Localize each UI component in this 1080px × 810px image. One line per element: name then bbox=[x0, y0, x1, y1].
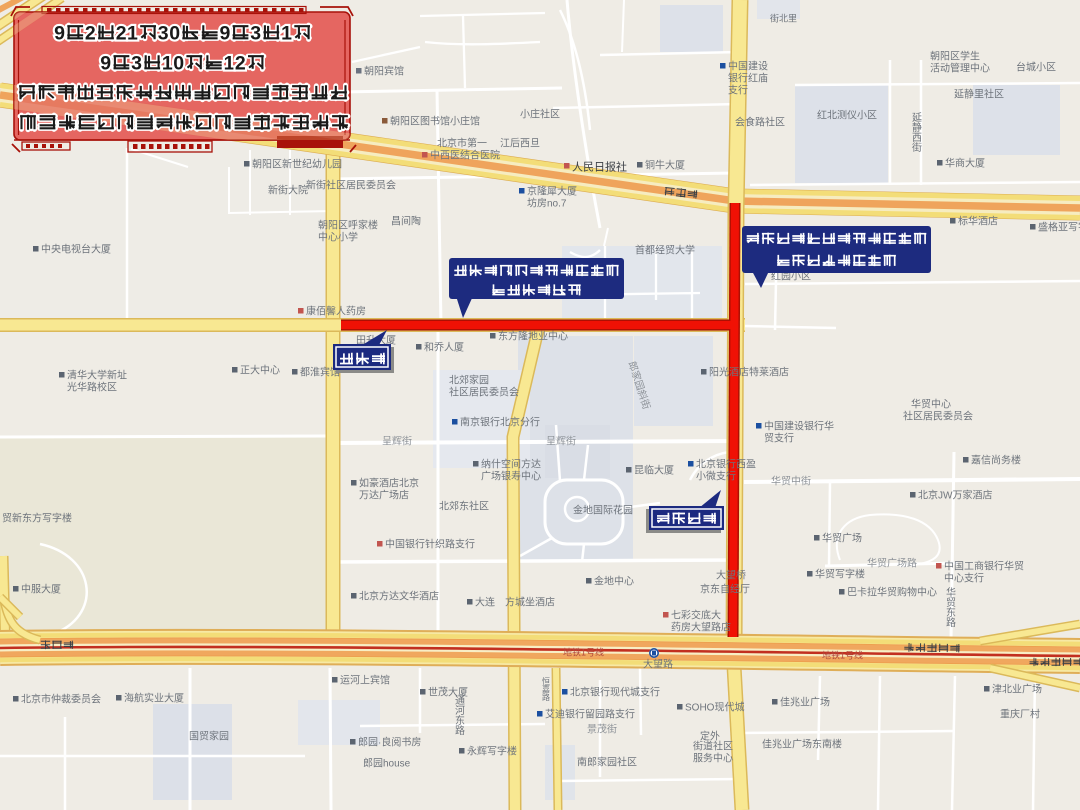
svg-text:1: 1 bbox=[281, 23, 292, 45]
svg-text:通河东路: 通河东路 bbox=[453, 695, 465, 736]
svg-text:永辉写字楼: 永辉写字楼 bbox=[467, 745, 517, 758]
svg-text:佳兆业广场东南楼: 佳兆业广场东南楼 bbox=[762, 738, 842, 751]
svg-text:SOHO现代城: SOHO现代城 bbox=[685, 702, 744, 714]
svg-text:1: 1 bbox=[162, 53, 173, 75]
svg-text:康佰馨人药房: 康佰馨人药房 bbox=[306, 305, 366, 318]
svg-text:如豪酒店北京: 如豪酒店北京 bbox=[359, 477, 419, 490]
svg-text:巴卡拉华贸购物中心: 巴卡拉华贸购物中心 bbox=[847, 586, 937, 599]
svg-text:中西医结合医院: 中西医结合医院 bbox=[430, 149, 500, 162]
svg-text:海航实业大厦: 海航实业大厦 bbox=[124, 692, 184, 705]
svg-text:和乔人厦: 和乔人厦 bbox=[424, 342, 464, 354]
svg-text:小庄社区: 小庄社区 bbox=[520, 108, 560, 121]
svg-text:北京市仲裁委员会: 北京市仲裁委员会 bbox=[21, 693, 101, 706]
svg-text:中国银行针织路支行: 中国银行针织路支行 bbox=[385, 538, 475, 551]
svg-text:华商大厦: 华商大厦 bbox=[945, 157, 985, 170]
svg-text:恒嘉路: 恒嘉路 bbox=[542, 676, 551, 701]
svg-text:新街大院: 新街大院 bbox=[268, 184, 308, 197]
svg-text:9: 9 bbox=[220, 23, 231, 45]
svg-text:中国工商银行华贸: 中国工商银行华贸 bbox=[944, 560, 1024, 573]
svg-text:金地国际花园: 金地国际花园 bbox=[573, 504, 633, 517]
svg-text:中央电视台大厦: 中央电视台大厦 bbox=[41, 243, 111, 256]
svg-text:国贸家园: 国贸家园 bbox=[189, 730, 229, 743]
svg-text:北京JW万家酒店: 北京JW万家酒店 bbox=[918, 489, 992, 502]
svg-text:呈辉街: 呈辉街 bbox=[382, 435, 412, 448]
svg-text:江后西旦: 江后西旦 bbox=[500, 138, 540, 150]
svg-text:京东自经厅: 京东自经厅 bbox=[700, 583, 750, 596]
svg-text:街道社区: 街道社区 bbox=[693, 740, 733, 753]
svg-text:贸新东方写字楼: 贸新东方写字楼 bbox=[2, 512, 72, 525]
svg-text:京隆犀大厦: 京隆犀大厦 bbox=[527, 185, 577, 198]
svg-text:纳什空间方达: 纳什空间方达 bbox=[481, 458, 541, 471]
svg-text:郎园house: 郎园house bbox=[363, 757, 411, 770]
svg-text:中国建设: 中国建设 bbox=[728, 60, 768, 73]
svg-text:七彩交底大: 七彩交底大 bbox=[671, 609, 721, 622]
svg-text:朝阳区图书馆小庄馆: 朝阳区图书馆小庄馆 bbox=[390, 115, 480, 128]
svg-text:3: 3 bbox=[131, 53, 142, 75]
svg-text:铜牛大厦: 铜牛大厦 bbox=[645, 159, 685, 172]
svg-text:东方隆地业中心: 东方隆地业中心 bbox=[498, 330, 568, 343]
svg-text:北京银行西盈: 北京银行西盈 bbox=[696, 458, 756, 471]
svg-text:银行红庙: 银行红庙 bbox=[728, 72, 768, 85]
svg-text:华贸广场路: 华贸广场路 bbox=[867, 557, 917, 570]
svg-text:贸支行: 贸支行 bbox=[764, 432, 794, 445]
svg-text:坊房no.7: 坊房no.7 bbox=[527, 197, 567, 210]
svg-text:华贸东路: 华贸东路 bbox=[944, 586, 956, 628]
svg-text:会食路社区: 会食路社区 bbox=[735, 116, 785, 129]
svg-text:盛格亚写字: 盛格亚写字 bbox=[1038, 221, 1080, 234]
svg-text:朝阳区新世纪幼儿园: 朝阳区新世纪幼儿园 bbox=[252, 158, 342, 171]
svg-text:中服大厦: 中服大厦 bbox=[21, 583, 61, 596]
svg-text:2: 2 bbox=[85, 23, 96, 45]
svg-text:昆临大厦: 昆临大厦 bbox=[634, 464, 674, 477]
svg-text:1: 1 bbox=[224, 53, 235, 75]
svg-text:小微支行: 小微支行 bbox=[696, 470, 736, 483]
svg-text:正大中心: 正大中心 bbox=[240, 364, 280, 377]
svg-text:广场银寿中心: 广场银寿中心 bbox=[481, 470, 541, 483]
svg-text:呈辉街: 呈辉街 bbox=[546, 435, 576, 448]
svg-text:华贸写字楼: 华贸写字楼 bbox=[815, 568, 865, 581]
svg-text:首都经贸大学: 首都经贸大学 bbox=[635, 244, 695, 257]
svg-text:嘉信尚务楼: 嘉信尚务楼 bbox=[971, 454, 1021, 467]
svg-text:郎园·良阅书房: 郎园·良阅书房 bbox=[358, 736, 421, 749]
svg-text:1: 1 bbox=[127, 23, 138, 45]
svg-text:3: 3 bbox=[158, 23, 169, 45]
svg-text:南京银行北京分行: 南京银行北京分行 bbox=[460, 416, 540, 429]
svg-text:昌间陶: 昌间陶 bbox=[391, 215, 421, 228]
svg-text:中国建设银行华: 中国建设银行华 bbox=[764, 420, 834, 433]
svg-text:艾迪银行留园路支行: 艾迪银行留园路支行 bbox=[545, 708, 635, 721]
svg-text:0: 0 bbox=[173, 53, 184, 75]
svg-text:北京银行现代城支行: 北京银行现代城支行 bbox=[570, 686, 660, 699]
svg-text:药房大望路店: 药房大望路店 bbox=[671, 621, 731, 634]
svg-text:服务中心: 服务中心 bbox=[693, 752, 733, 765]
svg-text:延静西街: 延静西街 bbox=[910, 112, 922, 153]
svg-text:地铁1号线: 地铁1号线 bbox=[822, 650, 863, 661]
svg-text:2: 2 bbox=[235, 53, 246, 75]
svg-text:万达广场店: 万达广场店 bbox=[359, 489, 409, 502]
svg-text:华贸中心: 华贸中心 bbox=[911, 398, 951, 411]
svg-text:地铁1号线: 地铁1号线 bbox=[563, 647, 604, 658]
svg-text:延静里社区: 延静里社区 bbox=[954, 88, 1004, 101]
svg-text:标华酒店: 标华酒店 bbox=[958, 215, 998, 228]
svg-text:大连 方城坐酒店: 大连 方城坐酒店 bbox=[475, 596, 555, 609]
svg-text:社区居民委员会: 社区居民委员会 bbox=[903, 410, 973, 423]
svg-text:3: 3 bbox=[250, 23, 261, 45]
svg-text:朝阳区呼家楼: 朝阳区呼家楼 bbox=[318, 219, 378, 232]
svg-text:2: 2 bbox=[116, 23, 127, 45]
svg-text:北郊家园: 北郊家园 bbox=[449, 374, 489, 387]
svg-text:台城小区: 台城小区 bbox=[1016, 61, 1056, 74]
svg-text:清华大学新址: 清华大学新址 bbox=[67, 369, 127, 382]
svg-text:红北测仪小区: 红北测仪小区 bbox=[817, 109, 877, 122]
svg-text:佳兆业广场: 佳兆业广场 bbox=[780, 696, 830, 709]
svg-text:津北业广场: 津北业广场 bbox=[992, 683, 1042, 696]
svg-text:北京市第一: 北京市第一 bbox=[437, 137, 487, 150]
svg-text:中心支行: 中心支行 bbox=[944, 572, 984, 585]
svg-text:金地中心: 金地中心 bbox=[594, 575, 634, 588]
svg-text:景茂街: 景茂街 bbox=[587, 723, 617, 736]
svg-text:华贸广场: 华贸广场 bbox=[822, 532, 862, 545]
svg-text:0: 0 bbox=[169, 23, 180, 45]
svg-text:9: 9 bbox=[54, 23, 65, 45]
svg-text:北京方达文华酒店: 北京方达文华酒店 bbox=[359, 590, 439, 603]
svg-text:北郊东社区: 北郊东社区 bbox=[439, 500, 489, 513]
svg-text:南郎家园社区: 南郎家园社区 bbox=[577, 756, 637, 769]
svg-text:中心小学: 中心小学 bbox=[318, 231, 358, 244]
svg-text:朝阳区学生: 朝阳区学生 bbox=[930, 50, 980, 63]
svg-text:大望路: 大望路 bbox=[643, 658, 673, 671]
svg-text:运河上宾馆: 运河上宾馆 bbox=[340, 674, 390, 687]
svg-text:阳光酒店特莱酒店: 阳光酒店特莱酒店 bbox=[709, 366, 789, 379]
svg-text:人民日报社: 人民日报社 bbox=[572, 159, 627, 173]
svg-text:光华路校区: 光华路校区 bbox=[67, 381, 117, 394]
svg-text:街北里: 街北里 bbox=[770, 13, 797, 24]
svg-text:华贸中街: 华贸中街 bbox=[771, 475, 811, 488]
svg-text:9: 9 bbox=[100, 53, 111, 75]
svg-text:社区居民委员会: 社区居民委员会 bbox=[449, 386, 519, 399]
svg-text:活动管理中心: 活动管理中心 bbox=[930, 62, 990, 75]
svg-text:重庆厂村: 重庆厂村 bbox=[1000, 708, 1040, 721]
svg-text:朝阳宾馆: 朝阳宾馆 bbox=[364, 65, 404, 78]
svg-text:支行: 支行 bbox=[728, 84, 748, 97]
svg-text:大望桥: 大望桥 bbox=[716, 569, 746, 582]
svg-text:新街社区居民委员会: 新街社区居民委员会 bbox=[306, 179, 396, 192]
